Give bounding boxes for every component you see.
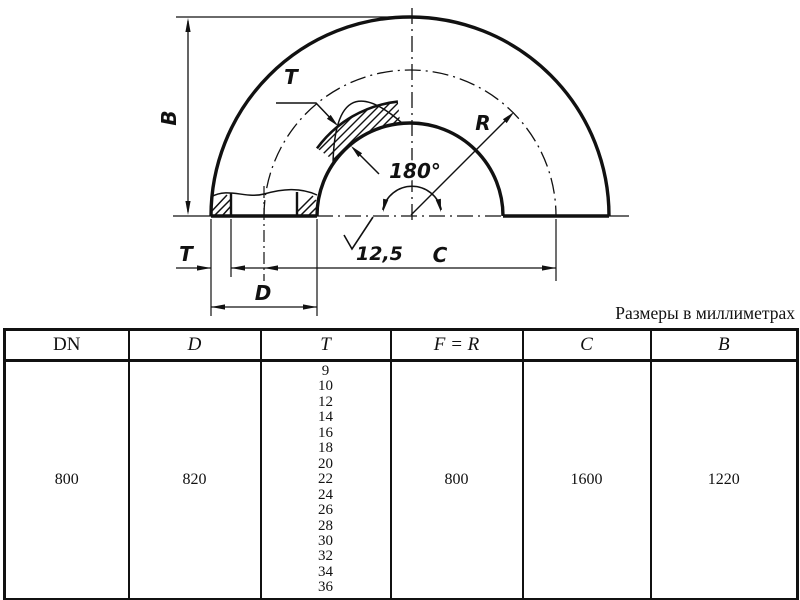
cell-b: 1220 bbox=[651, 361, 798, 600]
t-value: 30 bbox=[263, 534, 389, 549]
b-arrow-up bbox=[185, 18, 190, 32]
t-value: 14 bbox=[263, 410, 389, 425]
b-arrow-down bbox=[185, 201, 190, 215]
bend-centerline-arc bbox=[264, 70, 556, 216]
table-header-row: DN D T F = R C B bbox=[5, 330, 798, 361]
t-arrow-right bbox=[231, 265, 245, 270]
elbow-180-drawing: B T C D R 180° T 12,5 bbox=[0, 0, 800, 330]
header-dn: DN bbox=[5, 330, 129, 361]
t-value: 28 bbox=[263, 519, 389, 534]
header-t: T bbox=[261, 330, 391, 361]
dimensions-table: DN D T F = R C B 800 820 9 10 12 14 16 bbox=[3, 328, 799, 600]
t-wall-label: T bbox=[179, 242, 194, 266]
t-value: 22 bbox=[263, 472, 389, 487]
angle-arrow-right bbox=[436, 199, 441, 212]
r-label: R bbox=[475, 111, 490, 135]
c-arrow-left bbox=[264, 265, 278, 270]
t-value: 9 bbox=[263, 364, 389, 379]
t-value: 16 bbox=[263, 426, 389, 441]
header-d: D bbox=[129, 330, 261, 361]
cell-t: 9 10 12 14 16 18 20 22 24 26 28 30 32 34 bbox=[261, 361, 391, 600]
t-value: 18 bbox=[263, 441, 389, 456]
d-arrow-right bbox=[303, 304, 317, 309]
cell-d: 820 bbox=[129, 361, 261, 600]
units-note: Размеры в миллиметрах bbox=[615, 303, 795, 324]
t-value: 12 bbox=[263, 395, 389, 410]
table-data-row: 800 820 9 10 12 14 16 18 20 22 24 26 28 bbox=[5, 361, 798, 600]
t-section-label: T bbox=[284, 65, 299, 89]
t-value: 36 bbox=[263, 580, 389, 595]
c-label: C bbox=[433, 243, 448, 267]
t-value: 10 bbox=[263, 379, 389, 394]
cell-c: 1600 bbox=[523, 361, 651, 600]
d-arrow-left bbox=[211, 304, 225, 309]
t-value: 34 bbox=[263, 565, 389, 580]
t-value: 32 bbox=[263, 549, 389, 564]
header-c: C bbox=[523, 330, 651, 361]
angle-label: 180° bbox=[389, 159, 441, 183]
t-arrow-left bbox=[197, 265, 211, 270]
t-values-list: 9 10 12 14 16 18 20 22 24 26 28 30 32 34 bbox=[263, 363, 389, 597]
c-arrow-right bbox=[542, 265, 556, 270]
angle-arrow-left bbox=[383, 199, 388, 212]
header-b: B bbox=[651, 330, 798, 361]
cell-f-r: 800 bbox=[391, 361, 523, 600]
standard-page: B T C D R 180° T 12,5 Размеры в мил bbox=[0, 0, 800, 600]
b-label: B bbox=[157, 110, 181, 125]
cell-dn: 800 bbox=[5, 361, 129, 600]
t-value: 20 bbox=[263, 457, 389, 472]
t-value: 24 bbox=[263, 488, 389, 503]
roughness-label: 12,5 bbox=[356, 243, 403, 265]
d-label: D bbox=[255, 281, 272, 305]
t-value: 26 bbox=[263, 503, 389, 518]
header-f-r: F = R bbox=[391, 330, 523, 361]
